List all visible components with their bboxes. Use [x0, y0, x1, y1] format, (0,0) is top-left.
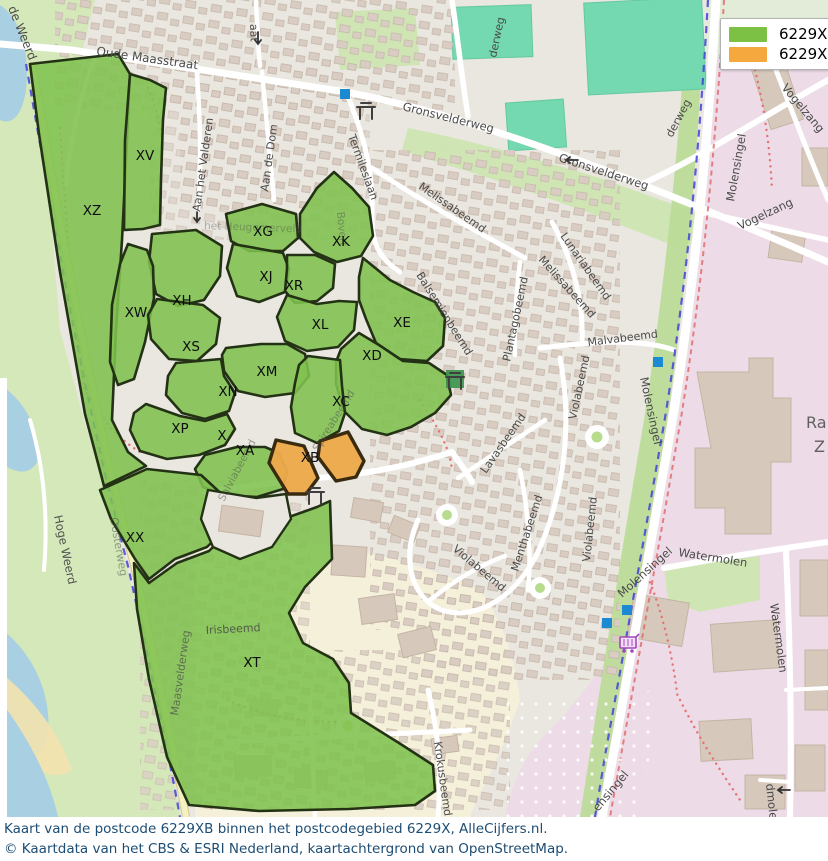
region-label-XP: XP — [171, 421, 188, 437]
transit-stop-marker — [653, 357, 663, 367]
region-label-X: X — [217, 428, 226, 444]
region-label-XD: XD — [362, 348, 382, 364]
region-label-XS: XS — [182, 339, 200, 355]
map-caption: Kaart van de postcode 6229XB binnen het … — [0, 817, 828, 861]
region-label-XL: XL — [312, 317, 329, 333]
legend-swatch-6229X — [729, 27, 767, 42]
region-label-XV: XV — [136, 148, 155, 164]
region-label-XX: XX — [126, 530, 145, 546]
region-label-XE: XE — [393, 315, 411, 331]
region-XJ[interactable] — [227, 244, 289, 302]
region-label-XG: XG — [253, 224, 273, 240]
region-label-XA: XA — [236, 443, 255, 459]
caption-line-1: Kaart van de postcode 6229XB binnen het … — [4, 819, 828, 839]
region-label-XC: XC — [332, 394, 350, 410]
transit-stop-marker — [622, 605, 632, 615]
legend-label: 6229XB — [779, 45, 828, 63]
transit-stop-marker — [602, 618, 612, 628]
orchard-dots — [500, 690, 660, 817]
region-label-XJ: XJ — [259, 269, 272, 285]
legend-swatch-6229XB — [729, 47, 767, 62]
map-margin — [0, 378, 7, 817]
enclave-building — [218, 505, 263, 537]
region-label-XT: XT — [243, 655, 261, 671]
region-label-XR: XR — [285, 278, 304, 294]
caption-line-2: © Kaartdata van het CBS & ESRI Nederland… — [4, 839, 828, 859]
map-canvas[interactable]: Oude Maasstraatde WeerdaatAan het Valder… — [0, 0, 828, 817]
street-label: Z — [814, 437, 825, 456]
street-label: Ran — [806, 413, 828, 432]
postcode-map-page: Oude Maasstraatde WeerdaatAan het Valder… — [0, 0, 828, 861]
region-label-XH: XH — [172, 293, 191, 309]
region-label-XZ: XZ — [83, 203, 102, 219]
legend-row: 6229XB — [729, 44, 828, 64]
legend-row: 6229X — [729, 24, 828, 44]
region-label-XB: XB — [301, 450, 320, 466]
legend-label: 6229X — [779, 25, 827, 43]
region-label-XN: XN — [218, 384, 237, 400]
legend: 6229X6229XB — [720, 18, 828, 70]
street-label: aat — [247, 24, 261, 43]
region-label-XM: XM — [257, 364, 278, 380]
region-label-XK: XK — [332, 234, 351, 250]
transit-stop-marker — [340, 89, 350, 99]
region-label-XW: XW — [125, 305, 148, 321]
